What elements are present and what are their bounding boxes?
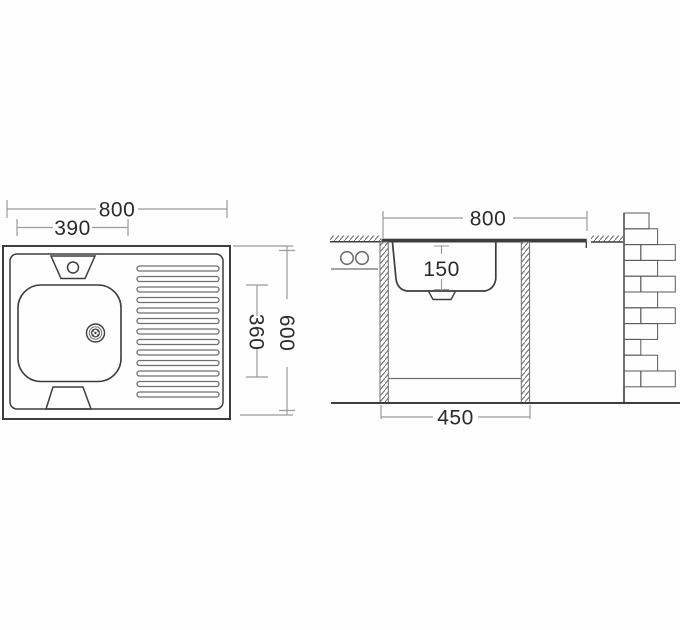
- dim-label-top-overall-width: 800: [99, 199, 136, 222]
- dim-label-side-stand-width: 450: [437, 407, 474, 430]
- stand-leg-right: [521, 242, 529, 403]
- sink-technical-drawing: 800 390: [0, 0, 680, 630]
- drawing-page: 800 390: [0, 0, 680, 630]
- background: [0, 0, 680, 630]
- drain-strainer: [87, 324, 105, 342]
- dim-label-top-bowl-depth: 360: [245, 314, 268, 351]
- countertop-left: [330, 236, 381, 242]
- dim-label-top-overall-depth: 600: [275, 315, 298, 352]
- dim-label-side-overall-width: 800: [470, 208, 507, 231]
- stand-leg-left: [380, 242, 388, 403]
- countertop-right: [591, 236, 623, 243]
- dim-label-top-bowl-width: 390: [54, 217, 91, 240]
- dim-label-side-bowl-height: 150: [423, 258, 460, 281]
